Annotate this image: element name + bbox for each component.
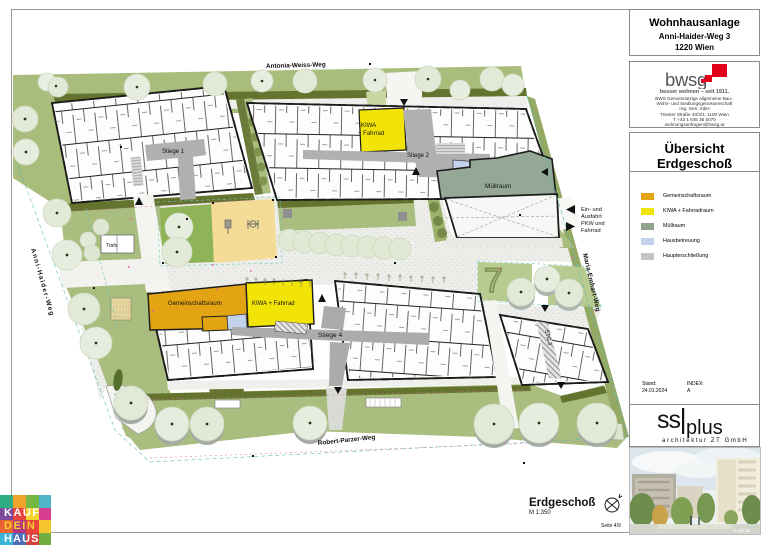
svg-text:Antonia-Weiss-Weg: Antonia-Weiss-Weg: [266, 61, 326, 70]
svg-text:Stiege 4: Stiege 4: [318, 332, 343, 339]
svg-text:PKW und: PKW und: [581, 221, 605, 227]
svg-text:Ausfahrt: Ausfahrt: [581, 214, 602, 220]
svg-text:plus: plus: [686, 417, 723, 439]
svg-text:+ Fahrrad: + Fahrrad: [358, 131, 384, 137]
svg-text:Seite 4/9: Seite 4/9: [601, 523, 621, 529]
svg-text:© vdx.at: © vdx.at: [733, 527, 750, 533]
svg-text:M 1:350: M 1:350: [529, 510, 551, 516]
svg-text:architektur ZT GmbH: architektur ZT GmbH: [662, 438, 748, 444]
svg-text:Robert-Parzer-Weg: Robert-Parzer-Weg: [317, 434, 375, 447]
svg-text:Erdgeschoß: Erdgeschoß: [529, 497, 595, 509]
svg-text:7: 7: [484, 262, 503, 300]
svg-text:Gemeinschaftsraum: Gemeinschaftsraum: [168, 301, 222, 307]
svg-text:Müllraum: Müllraum: [485, 183, 511, 190]
svg-text:Fahrrad: Fahrrad: [581, 228, 601, 234]
svg-text:Ein- und: Ein- und: [581, 207, 602, 213]
svg-text:ss: ss: [657, 406, 681, 434]
svg-text:KIWA: KIWA: [361, 123, 376, 129]
svg-text:Anni-Haider-Weg: Anni-Haider-Weg: [29, 248, 55, 318]
svg-text:Stiege 1: Stiege 1: [162, 149, 185, 155]
svg-text:bwsg: bwsg: [665, 69, 707, 89]
svg-text:Trafo: Trafo: [106, 243, 118, 249]
svg-text:Stiege 2: Stiege 2: [407, 153, 430, 159]
svg-text:KIWA + Fahrrad: KIWA + Fahrrad: [252, 301, 295, 307]
